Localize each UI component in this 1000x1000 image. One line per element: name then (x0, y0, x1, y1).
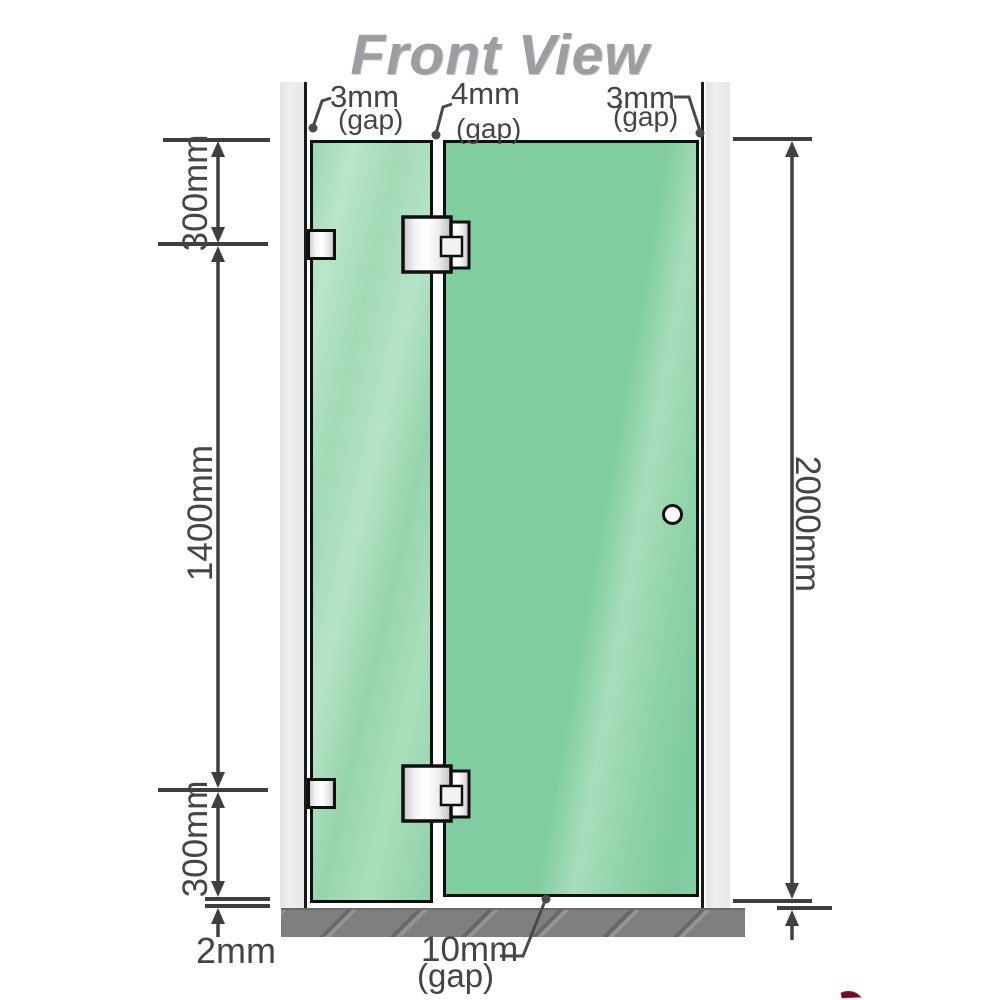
right-wall (706, 82, 730, 908)
right-wall-edge-line (701, 82, 704, 908)
gap-label-top-middle-suffix: (gap) (456, 113, 521, 145)
gap-label-bottom-suffix: (gap) (417, 957, 494, 995)
dim-label-2mm: 2mm (196, 930, 276, 972)
door-glass-panel (443, 140, 699, 897)
fixed-glass-panel (310, 140, 433, 903)
left-wall (280, 82, 304, 908)
gap-label-top-right-suffix: (gap) (613, 101, 678, 133)
dim-label-1400mm: 1400mm (181, 445, 221, 581)
dim-label-300mm-top: 300mm (176, 135, 216, 252)
left-wall-edge-line (304, 82, 307, 908)
logo-fragment (841, 991, 861, 998)
diagram-canvas: Front View (0, 0, 1000, 1000)
dim-label-300mm-bottom: 300mm (176, 781, 216, 898)
gap-label-top-middle-value: 4mm (451, 76, 520, 112)
dim-label-2000mm: 2000mm (787, 456, 827, 592)
door-handle-knob (662, 504, 683, 525)
gap-label-top-left-suffix: (gap) (338, 104, 403, 136)
